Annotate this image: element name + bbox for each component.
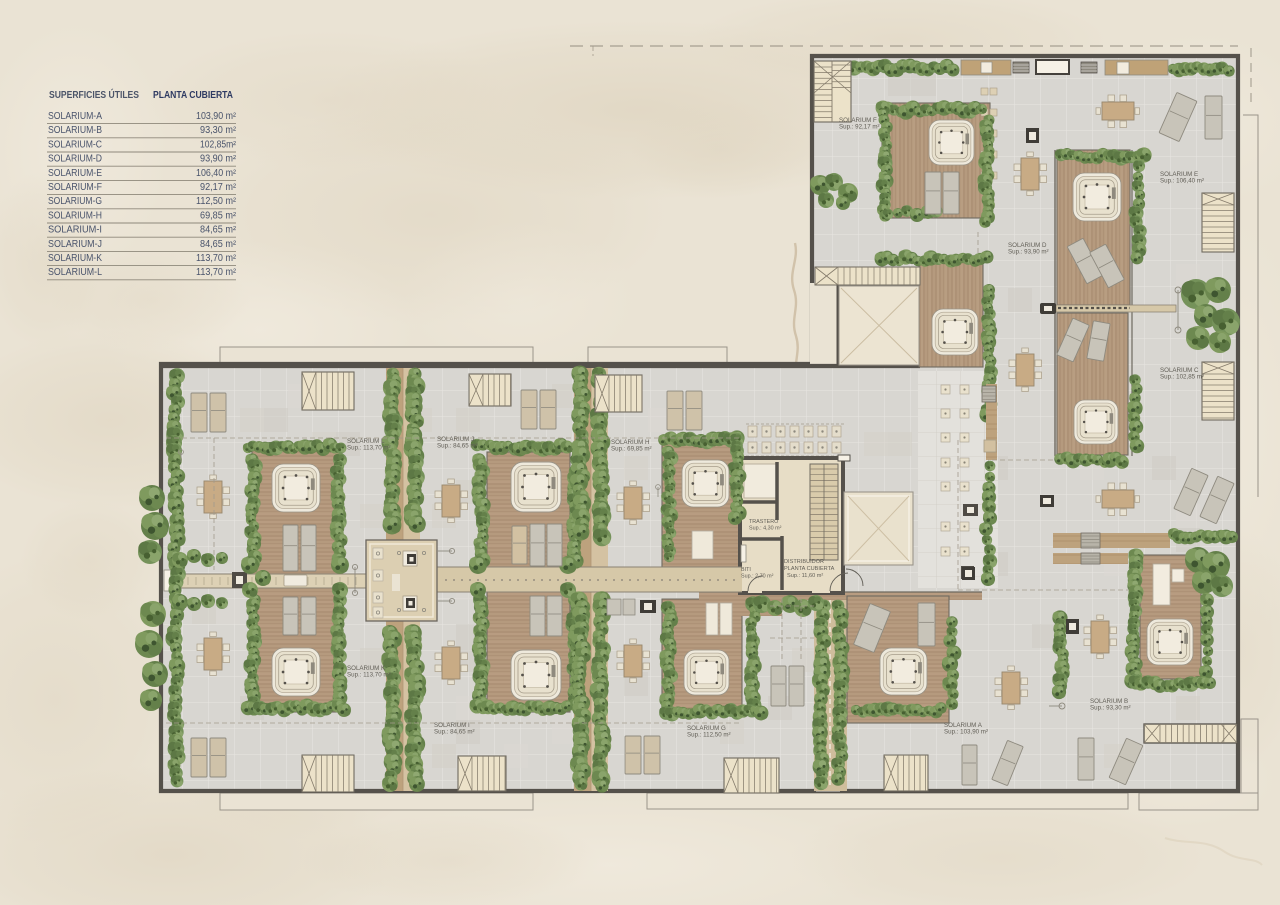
svg-text:84,65 m²: 84,65 m² [200,225,237,236]
svg-text:TRASTERO: TRASTERO [749,519,778,525]
svg-text:Sup.: 103,90 m²: Sup.: 103,90 m² [944,729,988,736]
svg-text:Sup.: 11,60 m²: Sup.: 11,60 m² [787,573,823,579]
svg-text:SOLARIUM-K: SOLARIUM-K [48,253,102,264]
svg-text:SOLARIUM-G: SOLARIUM-G [48,196,102,207]
svg-text:Sup.: 84,65 m²: Sup.: 84,65 m² [434,729,475,736]
svg-text:SOLARIUM-I: SOLARIUM-I [48,225,102,236]
svg-text:113,70 m²: 113,70 m² [196,253,237,264]
svg-text:SOLARIUM-A: SOLARIUM-A [48,111,102,122]
svg-text:Sup.: 69,85 m²: Sup.: 69,85 m² [611,446,652,453]
svg-text:103,90 m²: 103,90 m² [196,111,237,122]
svg-text:SOLARIUM-D: SOLARIUM-D [48,154,102,165]
svg-text:PLANTA CUBIERTA: PLANTA CUBIERTA [784,566,835,572]
svg-text:112,50 m²: 112,50 m² [196,196,237,207]
svg-text:Sup.: 106,40 m²: Sup.: 106,40 m² [1160,178,1204,185]
svg-text:BITI: BITI [741,567,751,573]
svg-text:SOLARIUM-B: SOLARIUM-B [48,125,102,136]
svg-text:SOLARIUM-H: SOLARIUM-H [48,210,102,221]
svg-text:Sup.: 112,50 m²: Sup.: 112,50 m² [687,732,731,739]
svg-text:Sup.: 93,30 m²: Sup.: 93,30 m² [1090,705,1131,712]
svg-text:93,30 m²: 93,30 m² [200,125,237,136]
svg-text:PLANTA CUBIERTA: PLANTA CUBIERTA [153,90,233,101]
svg-text:Sup.: 84,65 m²: Sup.: 84,65 m² [437,443,478,450]
svg-text:102,85m²: 102,85m² [200,139,237,150]
svg-text:Sup.: 113,70 m²: Sup.: 113,70 m² [347,672,391,679]
svg-text:SOLARIUM-C: SOLARIUM-C [48,139,102,150]
svg-text:SOLARIUM-E: SOLARIUM-E [48,168,102,179]
svg-text:69,85 m²: 69,85 m² [200,210,237,221]
svg-text:SUPERFICIES ÚTILES: SUPERFICIES ÚTILES [49,88,139,101]
svg-text:84,65 m²: 84,65 m² [200,239,237,250]
svg-text:SOLARIUM-L: SOLARIUM-L [48,267,102,278]
svg-text:113,70 m²: 113,70 m² [196,267,237,278]
svg-text:Sup.: 102,85 m²: Sup.: 102,85 m² [1160,374,1204,381]
svg-text:Sup.: 93,90 m²: Sup.: 93,90 m² [1008,249,1049,256]
svg-text:SOLARIUM-F: SOLARIUM-F [48,182,102,193]
svg-text:106,40 m²: 106,40 m² [196,168,237,179]
svg-text:Sup.: 4,30 m²: Sup.: 4,30 m² [749,526,782,532]
svg-text:Sup.: 2,70 m²: Sup.: 2,70 m² [741,574,774,580]
svg-text:Sup.: 113,70 m²: Sup.: 113,70 m² [347,445,391,452]
svg-text:SOLARIUM-J: SOLARIUM-J [48,239,102,250]
svg-text:DISTRIBUIDOR: DISTRIBUIDOR [784,559,824,565]
svg-text:Sup.: 92,17 m²: Sup.: 92,17 m² [839,124,880,131]
svg-text:93,90 m²: 93,90 m² [200,154,237,165]
svg-text:92,17 m²: 92,17 m² [200,182,237,193]
